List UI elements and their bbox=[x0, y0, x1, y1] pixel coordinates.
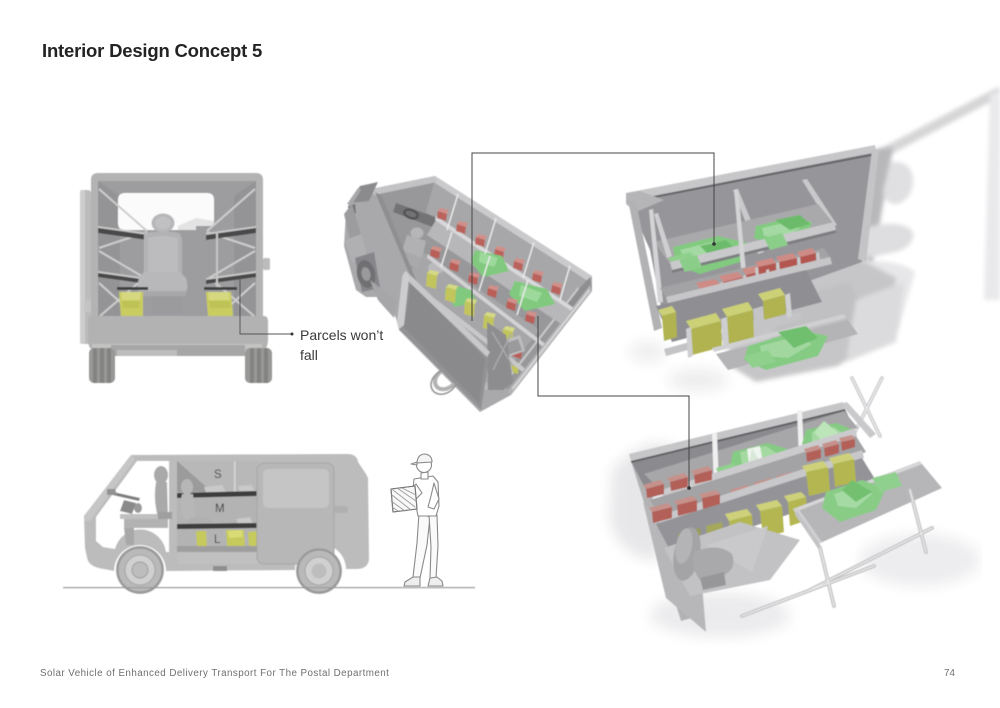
svg-text:Solar Vehicle of Enhanced Deli: Solar Vehicle of Enhanced Delivery Trans… bbox=[40, 668, 389, 679]
svg-text:fall: fall bbox=[300, 347, 318, 363]
svg-text:M: M bbox=[215, 503, 225, 515]
svg-text:74: 74 bbox=[944, 668, 955, 679]
svg-text:Parcels won’t: Parcels won’t bbox=[300, 327, 383, 343]
svg-text:Interior Design Concept 5: Interior Design Concept 5 bbox=[42, 40, 262, 61]
svg-text:L: L bbox=[214, 534, 221, 546]
svg-text:S: S bbox=[214, 469, 222, 481]
